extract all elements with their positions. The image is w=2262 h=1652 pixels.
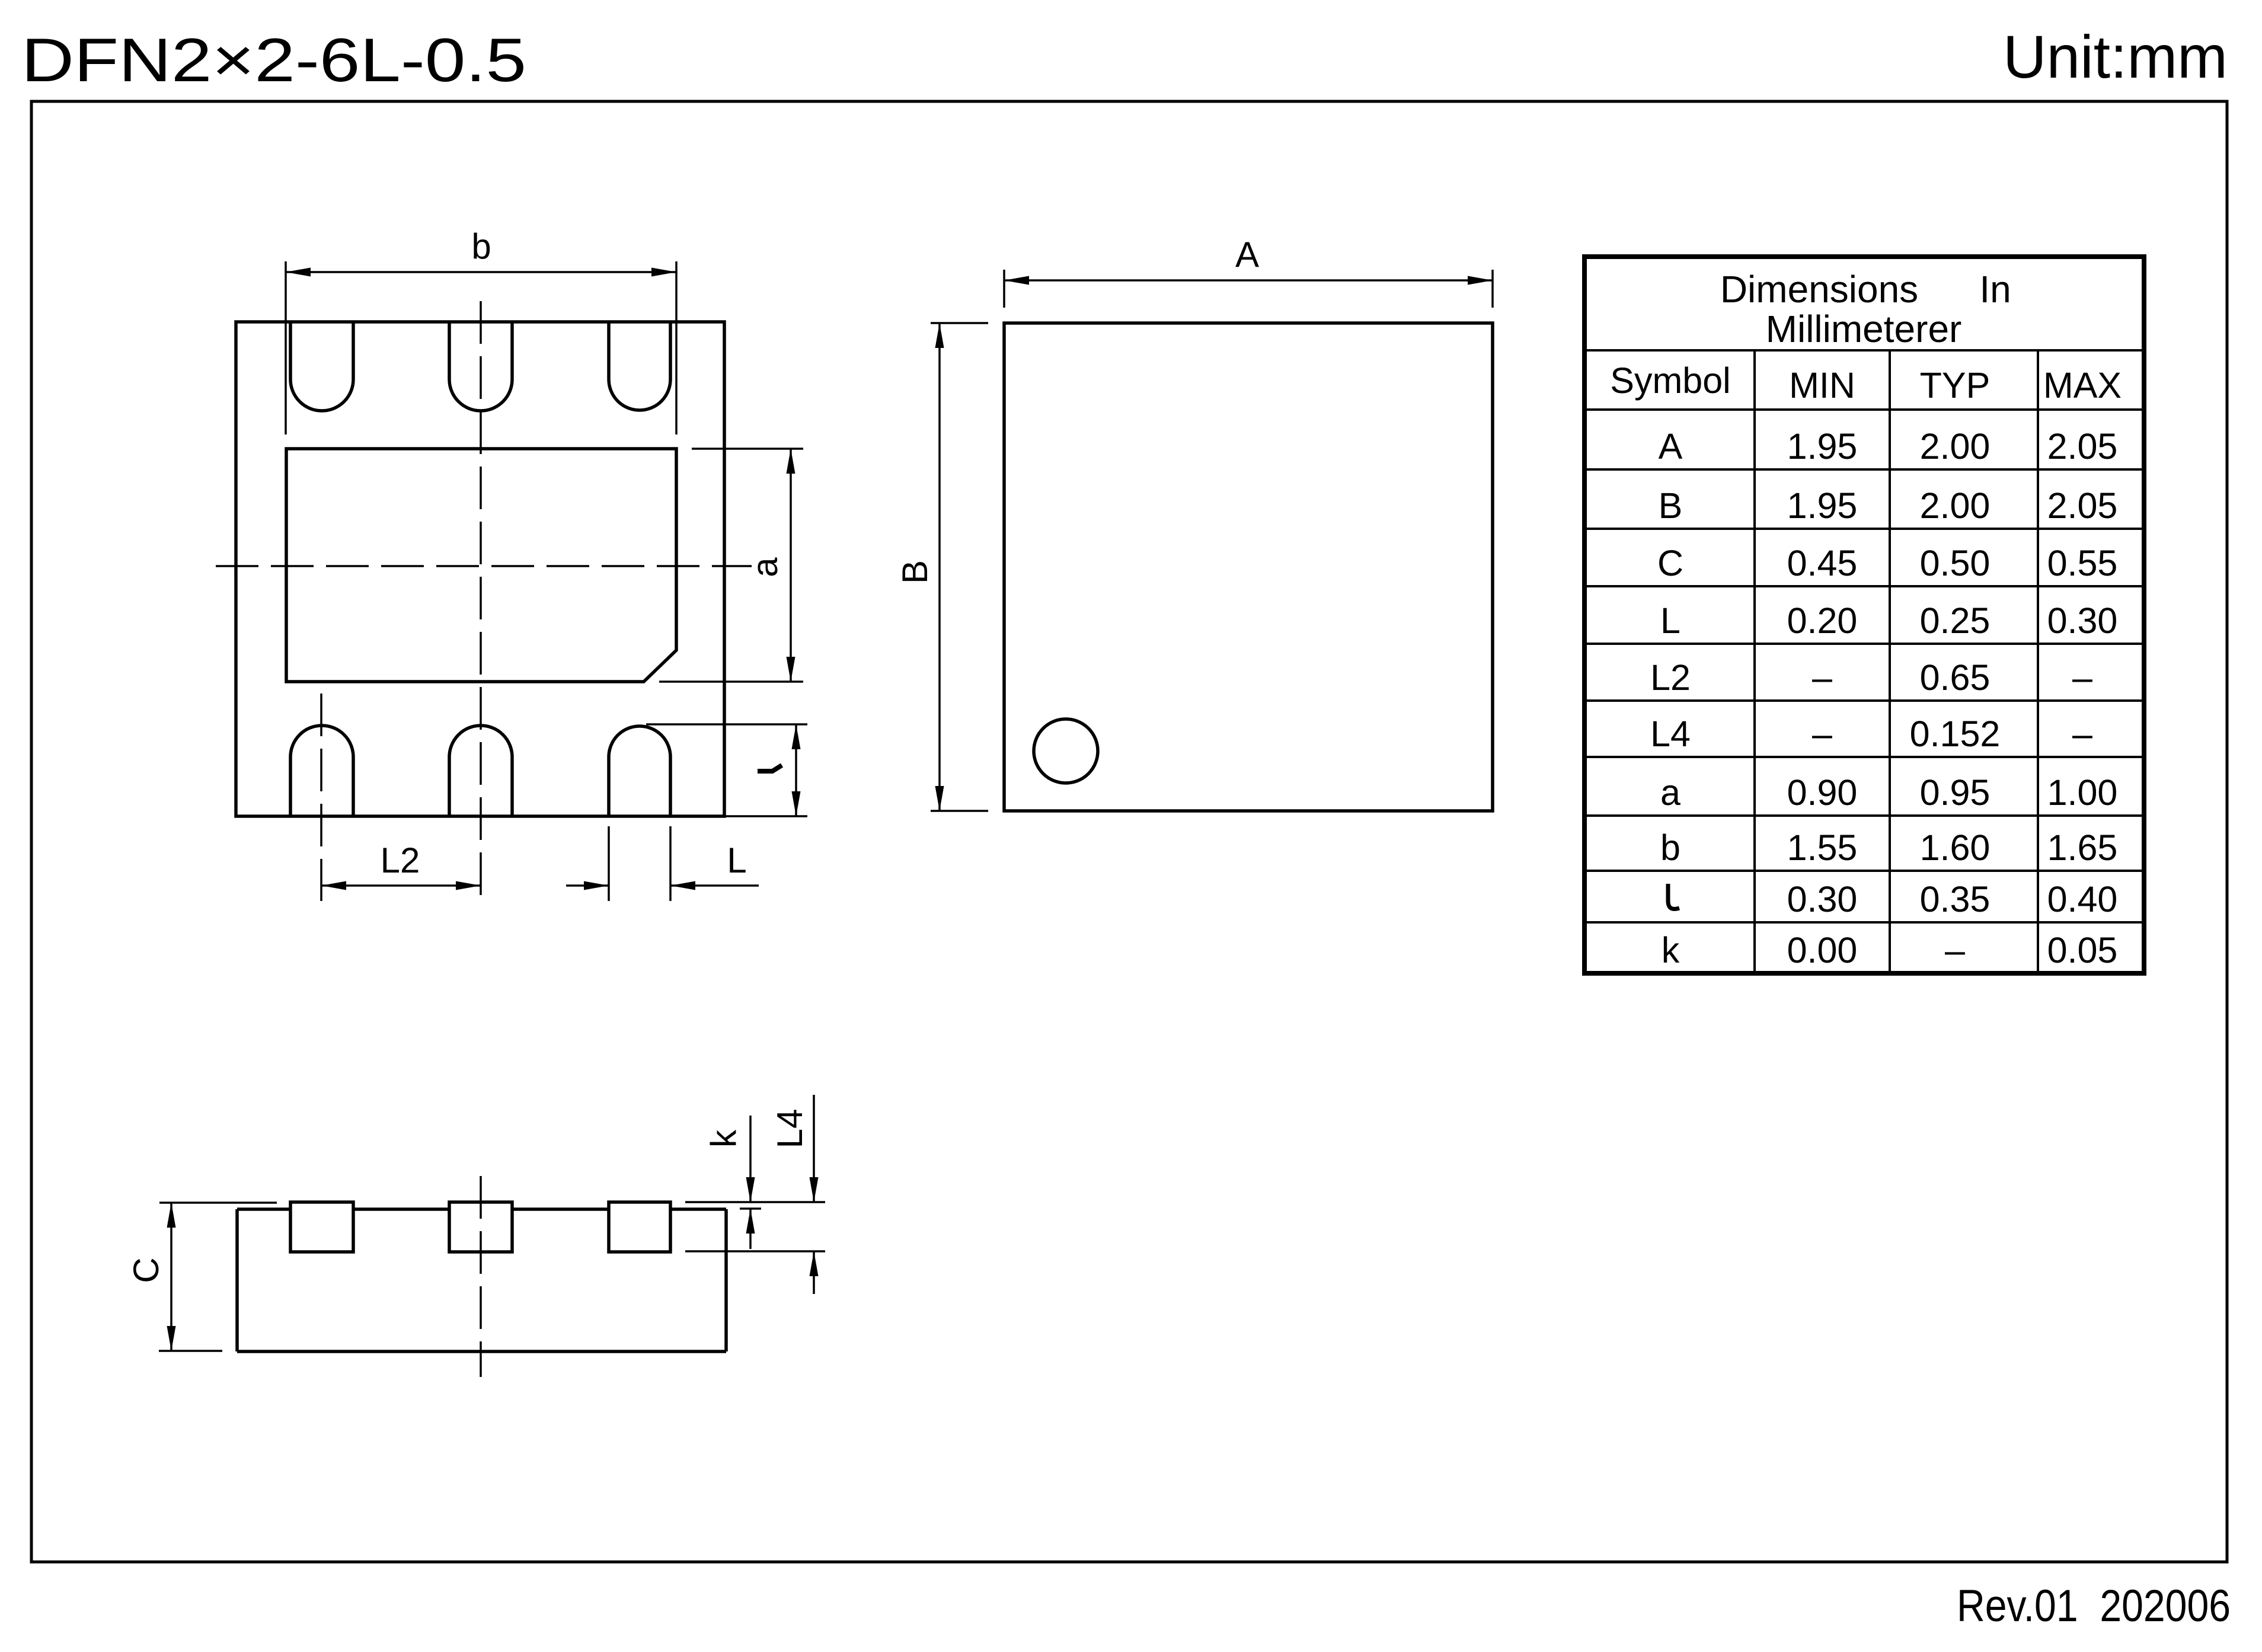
svg-text:L4: L4 [770, 1109, 810, 1149]
svg-text:–: – [1945, 930, 1965, 970]
svg-text:0.55: 0.55 [2047, 543, 2118, 583]
svg-text:Rev.01 202006: Rev.01 202006 [1957, 1581, 2231, 1631]
svg-text:DFN2×2-6L-0.5: DFN2×2-6L-0.5 [21, 26, 526, 95]
svg-text:b: b [1660, 827, 1680, 868]
svg-text:1.55: 1.55 [1787, 827, 1858, 868]
svg-text:B: B [895, 560, 935, 584]
svg-text:0.40: 0.40 [2047, 879, 2118, 919]
svg-text:0.45: 0.45 [1787, 543, 1858, 583]
svg-text:Unit:mm: Unit:mm [2003, 23, 2228, 91]
svg-text:1.95: 1.95 [1787, 426, 1858, 466]
svg-text:TYP: TYP [1920, 365, 1991, 405]
svg-text:0.65: 0.65 [1920, 657, 1991, 698]
svg-text:1.65: 1.65 [2047, 827, 2118, 868]
svg-text:Millimeterer: Millimeterer [1766, 308, 1962, 350]
svg-text:a: a [1660, 772, 1680, 813]
svg-text:A: A [1235, 235, 1259, 274]
svg-text:k: k [704, 1129, 743, 1148]
svg-text:–: – [2072, 714, 2092, 754]
svg-text:2.00: 2.00 [1920, 485, 1991, 526]
svg-text:L2: L2 [1650, 657, 1691, 698]
svg-text:MIN: MIN [1789, 365, 1855, 405]
svg-text:L2: L2 [381, 841, 420, 880]
svg-text:–: – [2072, 657, 2092, 698]
svg-text:1.95: 1.95 [1787, 485, 1858, 526]
svg-text:0.30: 0.30 [2047, 600, 2118, 641]
svg-text:C: C [1657, 543, 1683, 583]
svg-text:a: a [745, 557, 785, 577]
svg-text:C: C [126, 1257, 166, 1283]
svg-text:L: L [1660, 600, 1680, 641]
svg-text:2.05: 2.05 [2047, 426, 2118, 466]
svg-text:k: k [1662, 930, 1680, 970]
svg-text:L: L [727, 841, 746, 880]
svg-text:0.05: 0.05 [2047, 930, 2118, 970]
svg-text:–: – [1812, 714, 1832, 754]
svg-text:2.00: 2.00 [1920, 426, 1991, 466]
svg-text:L4: L4 [1650, 714, 1691, 754]
svg-text:0.90: 0.90 [1787, 772, 1858, 813]
svg-text:1.60: 1.60 [1920, 827, 1991, 868]
svg-text:A: A [1659, 426, 1683, 466]
svg-text:0.50: 0.50 [1920, 543, 1991, 583]
svg-text:Symbol: Symbol [1610, 360, 1730, 401]
svg-text:Dimensions: Dimensions [1720, 268, 1918, 311]
svg-text:0.25: 0.25 [1920, 600, 1991, 641]
svg-text:B: B [1659, 485, 1683, 526]
svg-text:b: b [471, 226, 491, 266]
svg-text:0.30: 0.30 [1787, 879, 1858, 919]
svg-text:0.95: 0.95 [1920, 772, 1991, 813]
svg-text:In: In [1979, 268, 2011, 311]
svg-text:0.00: 0.00 [1787, 930, 1858, 970]
svg-text:MAX: MAX [2043, 365, 2122, 405]
svg-text:0.35: 0.35 [1920, 879, 1991, 919]
svg-text:0.152: 0.152 [1910, 714, 2001, 754]
svg-text:0.20: 0.20 [1787, 600, 1858, 641]
svg-text:2.05: 2.05 [2047, 485, 2118, 526]
svg-text:–: – [1812, 657, 1832, 698]
svg-text:1.00: 1.00 [2047, 772, 2118, 813]
